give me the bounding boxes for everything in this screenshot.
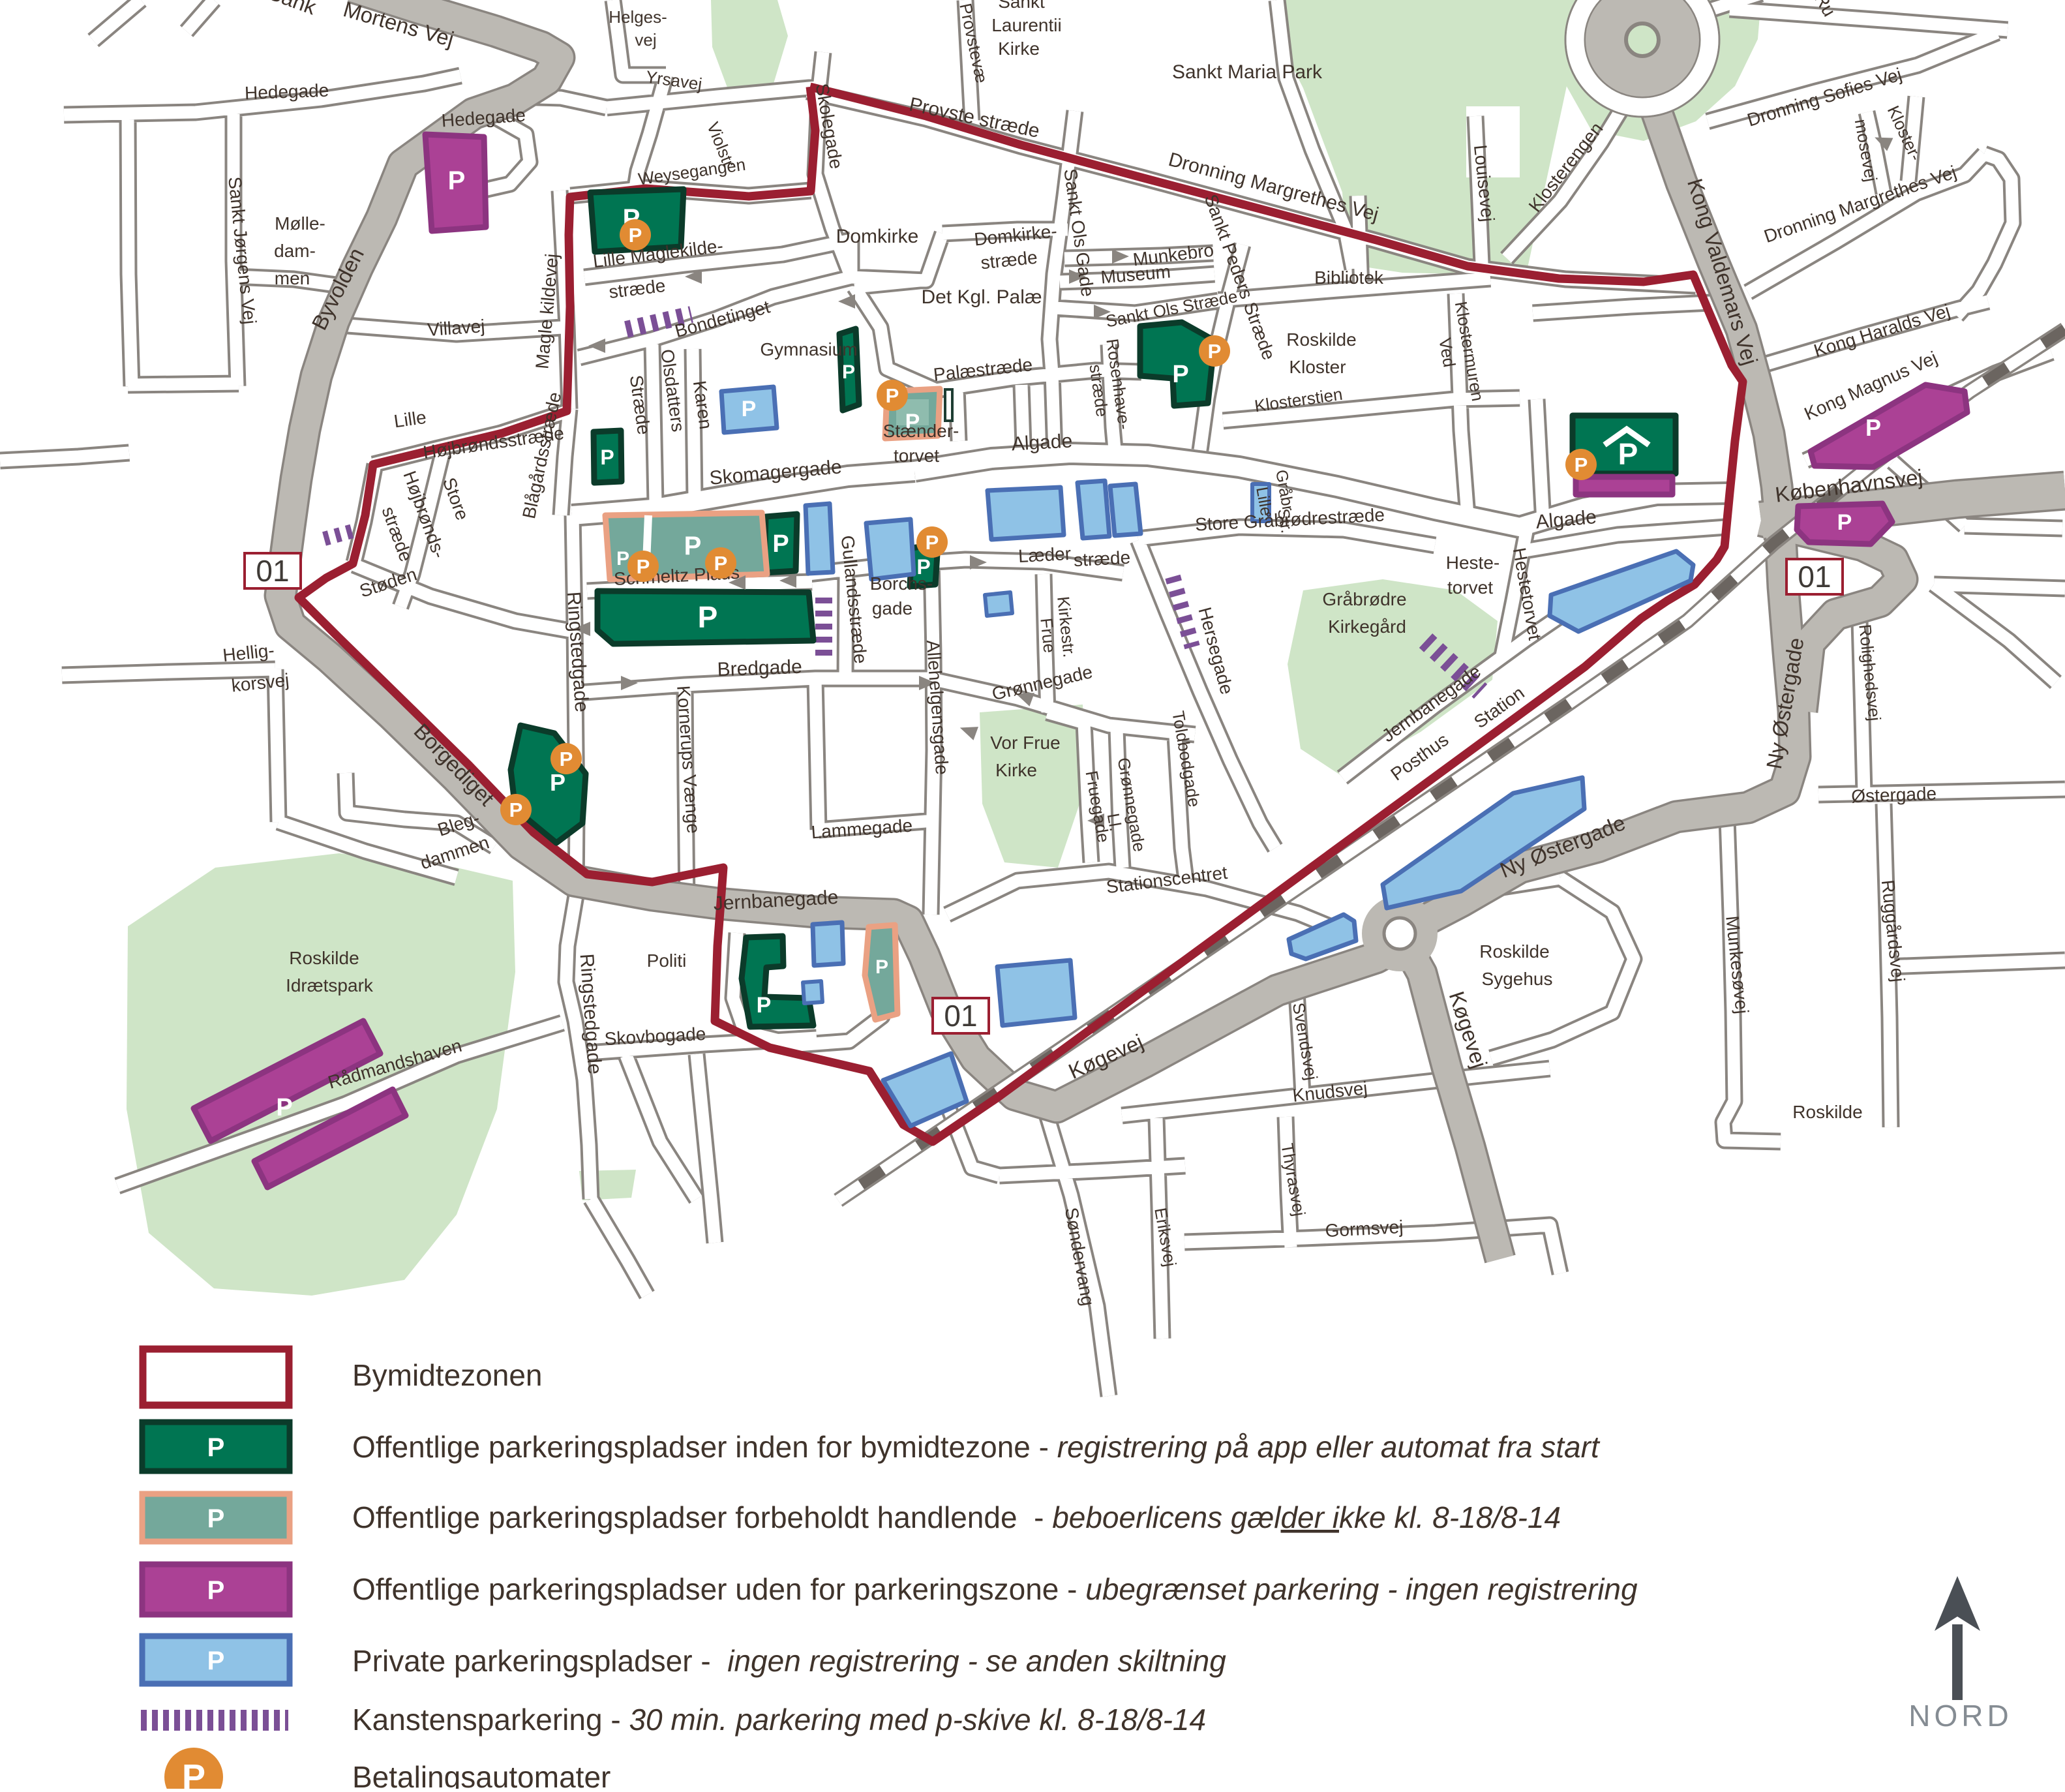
svg-text:P: P bbox=[886, 384, 899, 407]
svg-text:Algade: Algade bbox=[1011, 431, 1073, 455]
svg-text:Sankt Maria Park: Sankt Maria Park bbox=[1172, 61, 1323, 83]
svg-text:Stænder-: Stænder- bbox=[883, 421, 959, 441]
svg-text:Offentlige parkeringspladser u: Offentlige parkeringspladser uden for pa… bbox=[352, 1572, 1638, 1606]
svg-text:P: P bbox=[629, 224, 642, 247]
svg-text:01: 01 bbox=[944, 999, 977, 1033]
svg-text:Bibliotek: Bibliotek bbox=[1314, 267, 1384, 288]
svg-text:Idrætspark: Idrætspark bbox=[286, 975, 374, 995]
svg-text:01: 01 bbox=[1798, 560, 1831, 594]
svg-text:Offentlige parkeringspladser i: Offentlige parkeringspladser inden for b… bbox=[352, 1430, 1601, 1464]
svg-text:P: P bbox=[772, 530, 789, 558]
svg-text:Kanstensparkering - 30 min. pa: Kanstensparkering - 30 min. parkering me… bbox=[352, 1703, 1206, 1737]
svg-text:Læder: Læder bbox=[1017, 543, 1071, 566]
svg-text:P: P bbox=[875, 956, 888, 978]
svg-text:men: men bbox=[275, 268, 310, 288]
svg-text:P: P bbox=[1172, 361, 1188, 388]
svg-text:P: P bbox=[448, 166, 466, 195]
svg-text:P: P bbox=[276, 1094, 292, 1121]
svg-text:Heste-: Heste- bbox=[1446, 553, 1500, 573]
svg-text:01: 01 bbox=[256, 554, 289, 588]
svg-text:Domkirke: Domkirke bbox=[836, 226, 919, 247]
svg-text:P: P bbox=[1865, 414, 1881, 441]
svg-text:Vor Frue: Vor Frue bbox=[990, 733, 1060, 753]
svg-text:stræde: stræde bbox=[1073, 547, 1131, 571]
svg-text:Gymnasium: Gymnasium bbox=[760, 339, 857, 359]
svg-text:Roskilde: Roskilde bbox=[1792, 1102, 1862, 1122]
svg-text:NORD: NORD bbox=[1908, 1699, 2012, 1733]
svg-text:P: P bbox=[207, 1504, 225, 1533]
svg-text:Roskilde: Roskilde bbox=[289, 948, 359, 968]
svg-text:Roskilde: Roskilde bbox=[1479, 941, 1549, 962]
svg-text:P: P bbox=[1837, 510, 1852, 535]
svg-text:P: P bbox=[698, 600, 718, 634]
svg-text:gade: gade bbox=[872, 598, 912, 618]
svg-text:P: P bbox=[207, 1576, 225, 1605]
svg-text:P: P bbox=[842, 361, 855, 383]
svg-text:Gråbrødre: Gråbrødre bbox=[1322, 589, 1406, 609]
svg-text:Bredgade: Bredgade bbox=[717, 656, 802, 681]
svg-text:Borchs-: Borchs- bbox=[870, 573, 933, 594]
svg-text:torvet: torvet bbox=[1447, 577, 1493, 598]
svg-text:Mølle-: Mølle- bbox=[275, 213, 325, 234]
svg-text:P: P bbox=[1575, 453, 1588, 476]
svg-text:P: P bbox=[926, 531, 939, 554]
svg-text:P: P bbox=[1618, 437, 1638, 471]
svg-text:Kloster: Kloster bbox=[1289, 357, 1346, 377]
svg-text:Private parkeringspladser - i: Private parkeringspladser - ingen regist… bbox=[352, 1644, 1226, 1678]
svg-text:Hedegade: Hedegade bbox=[245, 80, 329, 103]
svg-text:Sygehus: Sygehus bbox=[1482, 969, 1553, 989]
svg-text:Politi: Politi bbox=[647, 950, 687, 971]
svg-text:Betalingsautomater: Betalingsautomater bbox=[352, 1760, 610, 1789]
svg-text:dam-: dam- bbox=[274, 241, 316, 261]
svg-text:P: P bbox=[560, 748, 573, 770]
svg-text:P: P bbox=[684, 532, 702, 560]
svg-text:Roskilde: Roskilde bbox=[1286, 329, 1356, 350]
svg-text:torvet: torvet bbox=[894, 446, 939, 466]
svg-text:Kirkegård: Kirkegård bbox=[1328, 616, 1406, 637]
svg-text:P: P bbox=[509, 798, 523, 821]
svg-text:Bymidtezonen: Bymidtezonen bbox=[352, 1358, 543, 1392]
svg-text:P: P bbox=[1208, 340, 1222, 363]
svg-text:P: P bbox=[637, 555, 650, 578]
svg-text:Ll.: Ll. bbox=[1104, 812, 1126, 832]
svg-text:P: P bbox=[757, 993, 772, 1018]
svg-text:vej: vej bbox=[635, 30, 656, 50]
svg-text:P: P bbox=[207, 1433, 225, 1462]
svg-text:Laurentii: Laurentii bbox=[991, 15, 1061, 35]
svg-text:Kirke: Kirke bbox=[998, 38, 1040, 59]
svg-text:Kirke: Kirke bbox=[995, 760, 1037, 780]
svg-text:P: P bbox=[714, 552, 728, 575]
svg-text:Offentlige parkeringspladser f: Offentlige parkeringspladser forbeholdt … bbox=[352, 1500, 1561, 1534]
svg-text:P: P bbox=[600, 446, 614, 469]
svg-text:P: P bbox=[742, 397, 757, 421]
svg-text:P: P bbox=[207, 1647, 225, 1675]
svg-text:Helges-: Helges- bbox=[609, 7, 667, 27]
svg-text:Det Kgl. Palæ: Det Kgl. Palæ bbox=[921, 286, 1042, 308]
svg-text:P: P bbox=[182, 1757, 205, 1789]
svg-text:Gormsvej: Gormsvej bbox=[1325, 1217, 1404, 1241]
svg-text:Villavej: Villavej bbox=[427, 316, 485, 340]
svg-text:Østergade: Østergade bbox=[1851, 783, 1937, 807]
svg-text:Sankt: Sankt bbox=[998, 0, 1045, 12]
